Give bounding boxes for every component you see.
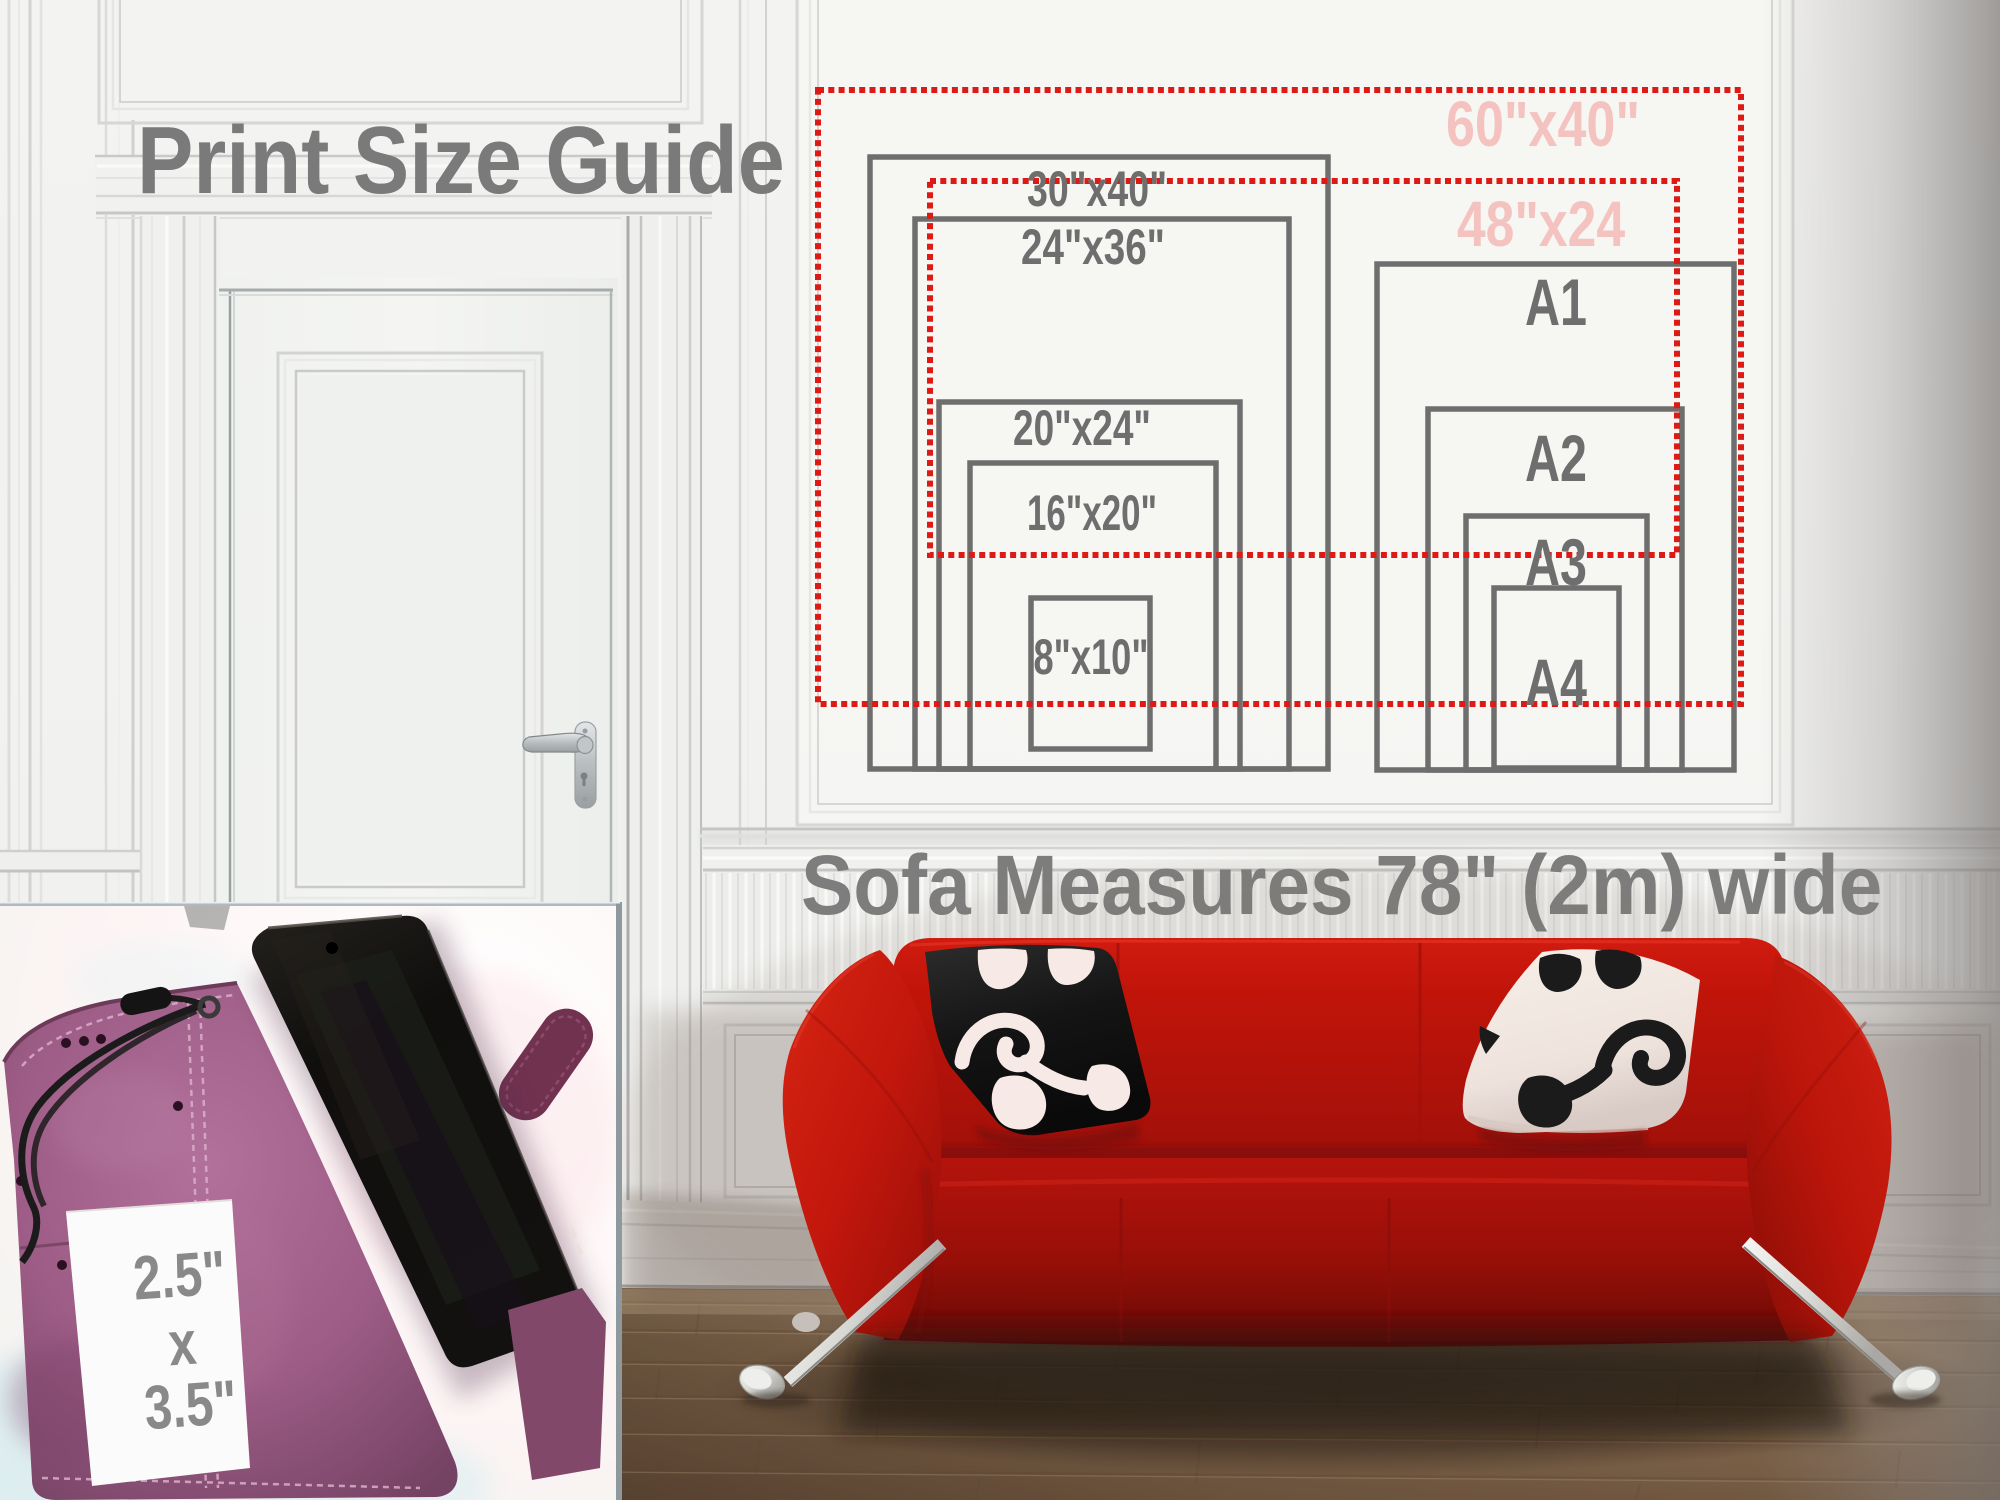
svg-text:24"x36": 24"x36" [1021, 220, 1165, 275]
svg-text:60"x40": 60"x40" [1446, 89, 1640, 160]
svg-text:x: x [166, 1307, 198, 1378]
svg-text:16"x20": 16"x20" [1027, 486, 1157, 542]
svg-text:2.5": 2.5" [131, 1237, 228, 1313]
svg-text:3.5": 3.5" [142, 1367, 239, 1443]
svg-text:A3: A3 [1525, 527, 1587, 600]
svg-text:A4: A4 [1525, 647, 1587, 720]
svg-text:20"x24": 20"x24" [1013, 401, 1151, 457]
svg-text:A2: A2 [1525, 423, 1587, 496]
svg-text:48"x24: 48"x24 [1457, 189, 1626, 261]
svg-text:8"x10": 8"x10" [1034, 629, 1149, 685]
svg-text:Print Size Guide: Print Size Guide [137, 107, 785, 214]
svg-text:30"x40": 30"x40" [1027, 162, 1167, 217]
svg-text:A1: A1 [1525, 267, 1587, 340]
